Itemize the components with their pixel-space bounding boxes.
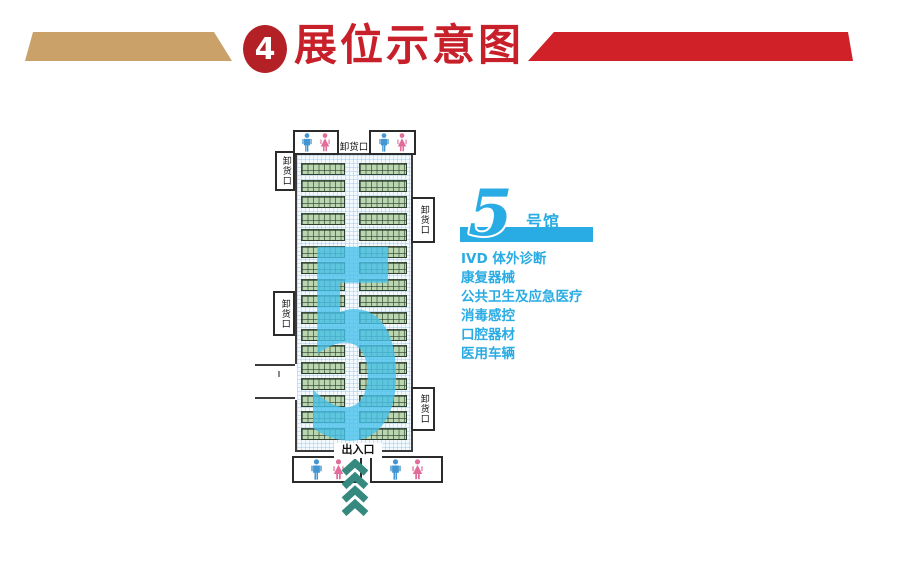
restroom-top-left — [293, 130, 339, 155]
restroom-top-right — [369, 130, 416, 155]
legend-item: 公共卫生及应急医疗 — [461, 288, 583, 307]
male-figure-icon — [377, 133, 391, 152]
dock-label-top: 卸货口 — [339, 139, 369, 153]
gate-stub-lower — [255, 397, 297, 399]
hall-number-overlay: 5 — [297, 155, 411, 450]
dock-label-left-middle: 卸货口 — [279, 299, 288, 329]
dock-box-right-lower: 卸货口 — [411, 387, 435, 431]
dock-label-right-upper: 卸货口 — [418, 205, 427, 235]
header-tan-ribbon — [25, 32, 232, 61]
male-figure-icon — [309, 459, 324, 480]
dock-label-right-lower: 卸货口 — [418, 394, 427, 424]
section-number: 4 — [255, 32, 276, 67]
legend-item: 消毒感控 — [461, 307, 583, 326]
hall-number-text: 5 — [301, 196, 406, 450]
page-title: 展位示意图 — [294, 25, 524, 68]
dock-box-left-middle: 卸货口 — [273, 291, 295, 336]
male-figure-icon — [388, 459, 403, 480]
female-figure-icon — [410, 459, 425, 480]
legend-item: 医用车辆 — [461, 345, 583, 364]
gate-tick-mark — [278, 371, 280, 377]
hall-outline: 5 — [295, 153, 413, 452]
legend-items: IVD 体外诊断康复器械公共卫生及应急医疗消毒感控口腔器材医用车辆 — [461, 250, 583, 364]
header-red-ribbon — [528, 32, 853, 61]
dock-label-left-upper: 卸货口 — [280, 156, 289, 186]
dock-box-left-upper: 卸货口 — [275, 151, 295, 191]
female-figure-icon — [395, 133, 409, 152]
male-figure-icon — [300, 133, 314, 152]
chevron-up-arrows-icon — [340, 459, 370, 518]
female-figure-icon — [318, 133, 332, 152]
legend-hall-number: 5 — [468, 182, 513, 246]
section-number-badge: 4 — [243, 25, 287, 73]
legend-item: IVD 体外诊断 — [461, 250, 583, 269]
restroom-bottom-right — [370, 456, 443, 483]
legend-item: 口腔器材 — [461, 326, 583, 345]
legend-hall-suffix: 号馆 — [526, 208, 560, 232]
gate-stub-upper — [255, 364, 297, 366]
entrance-label: 出入口 — [334, 443, 382, 458]
dock-box-right-upper: 卸货口 — [411, 197, 435, 243]
legend-item: 康复器械 — [461, 269, 583, 288]
slide: 4 展位示意图 5 卸货口 — [0, 0, 917, 584]
